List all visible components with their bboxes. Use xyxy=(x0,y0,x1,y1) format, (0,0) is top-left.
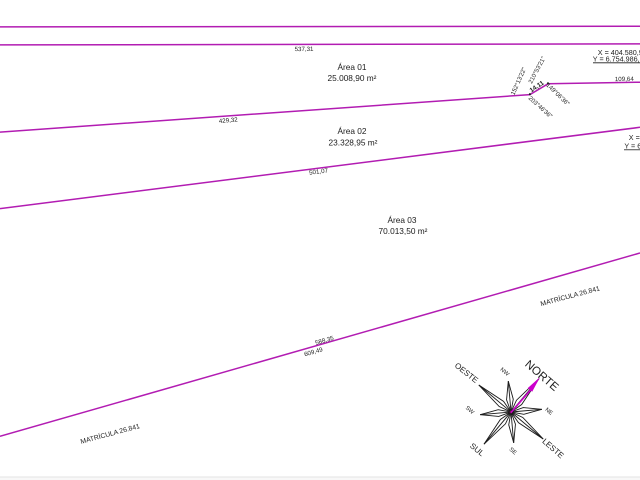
svg-text:537,31: 537,31 xyxy=(294,46,314,53)
svg-text:Área 03: Área 03 xyxy=(387,215,416,225)
svg-text:Y = 6.754.986,78: Y = 6.754.986,78 xyxy=(593,54,640,63)
svg-text:Área 01: Área 01 xyxy=(337,62,366,72)
svg-text:Área 02: Área 02 xyxy=(337,126,366,136)
svg-text:70.013,50 m²: 70.013,50 m² xyxy=(379,226,428,236)
svg-text:Y = 6.754.921,43: Y = 6.754.921,43 xyxy=(624,141,640,150)
svg-text:23.328,95 m²: 23.328,95 m² xyxy=(329,137,378,147)
svg-text:109,64: 109,64 xyxy=(615,76,635,83)
svg-text:25.008,90 m²: 25.008,90 m² xyxy=(328,73,377,83)
